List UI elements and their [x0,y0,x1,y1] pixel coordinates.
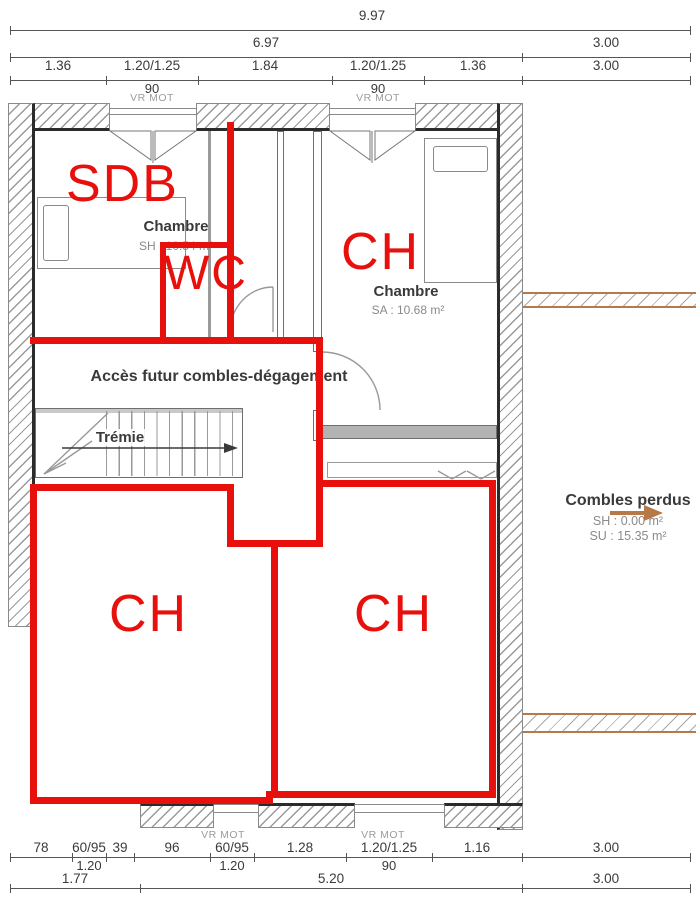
dim-sublabel: 90 [382,858,396,873]
dim-label: 1.77 [62,871,88,886]
window-bottom-left [214,804,258,813]
red-line [489,480,496,798]
window-top-left [110,108,196,115]
red-line [227,484,234,547]
annotation-ch-bottom-left: CH [109,588,188,640]
dim-tick [690,853,691,862]
combles-wall-bottom [523,713,696,733]
combles-wall-top [523,292,696,308]
exterior-wall-bottom [444,803,523,828]
dim-label: 3.00 [593,35,619,50]
red-line [271,540,278,798]
room-name: Chambre [373,283,438,300]
casement-window-icon [330,131,370,160]
room-name: Chambre [143,218,208,235]
dim-tick [10,76,11,85]
exterior-wall-bottom [258,803,355,828]
dim-tick [106,76,107,85]
dim-label: 1.36 [460,58,486,73]
exterior-wall-bottom [140,803,214,828]
dim-label: 3.00 [593,58,619,73]
dim-tick [432,853,433,862]
dim-label: 1.20/1.25 [350,58,406,73]
dim-tick [690,26,691,35]
red-line [30,797,273,804]
partition-closet [208,131,211,343]
dim-tick [690,76,691,85]
red-line [30,484,234,491]
dim-label: 96 [164,840,179,855]
dim-tick [690,884,691,893]
shutter-label: VR MOT [356,92,400,104]
annotation-ch-bottom-right: CH [354,588,433,640]
dim-tick [134,853,135,862]
dim-tick [690,53,691,62]
partition-wall [313,131,322,352]
dim-tick [210,853,211,862]
annotation-ch-right: CH [341,226,420,278]
red-line [316,480,496,487]
dim-label: 6.97 [253,35,279,50]
window-top-right [330,108,415,115]
dim-label: 1.84 [252,58,278,73]
dimension-line [10,857,690,858]
dimension-line [10,30,690,31]
floor-plan: 9.97 6.97 3.00 1.36 1.20/1.25 1.84 1.20/… [0,0,696,904]
interior-wall-band [322,425,497,439]
dim-label: 3.00 [593,840,619,855]
stairwell-label: Trémie [93,429,147,446]
annotation-sdb: SDB [66,158,179,210]
dim-tick [10,884,11,893]
dim-label: 60/95 [215,840,249,855]
red-line [30,337,323,344]
low-wall-sill [327,462,497,478]
red-line [227,122,234,344]
red-line [266,791,496,798]
dim-label: 60/95 [72,840,106,855]
annotation-wc: WC [164,250,248,298]
dim-tick [254,853,255,862]
dim-tick [522,884,523,893]
window-bottom-right [355,804,444,813]
dim-tick [106,853,107,862]
partition-wall [277,131,284,342]
shutter-label: VR MOT [130,92,174,104]
dimension-line [10,80,690,81]
dim-label: 39 [112,840,127,855]
dim-tick [10,853,11,862]
dim-label: 1.36 [45,58,71,73]
room-area: SA : 10.68 m² [372,303,445,317]
dim-label: 3.00 [593,871,619,886]
combles-su: SU : 15.35 m² [589,529,666,543]
red-line [227,540,323,547]
dim-tick [332,76,333,85]
dim-label: 1.20/1.25 [124,58,180,73]
dim-label: 1.28 [287,840,313,855]
pillow-symbol [433,146,488,172]
dimension-line [10,888,690,889]
dim-tick [522,853,523,862]
dim-label: 78 [33,840,48,855]
dim-tick [424,76,425,85]
dim-tick [140,884,141,893]
dim-tick [346,853,347,862]
red-line [30,484,37,804]
dim-label: 5.20 [318,871,344,886]
dim-tick [10,26,11,35]
combles-sh: SH : 0.00 m² [593,514,663,528]
dim-label: 1.16 [464,840,490,855]
dim-sublabel: 1.20 [219,858,244,873]
access-label: Accès futur combles-dégagement [91,368,348,386]
combles-name: Combles perdus [565,492,690,510]
red-line [316,337,323,547]
dim-label: 1.20/1.25 [361,840,417,855]
dim-label: 9.97 [359,8,385,23]
exterior-wall-right [497,103,523,830]
dim-tick [522,76,523,85]
casement-window-icon [375,131,415,160]
pillow-symbol [43,205,69,261]
exterior-wall-top [196,103,330,131]
dim-tick [10,53,11,62]
dim-tick [198,76,199,85]
dim-tick [522,53,523,62]
